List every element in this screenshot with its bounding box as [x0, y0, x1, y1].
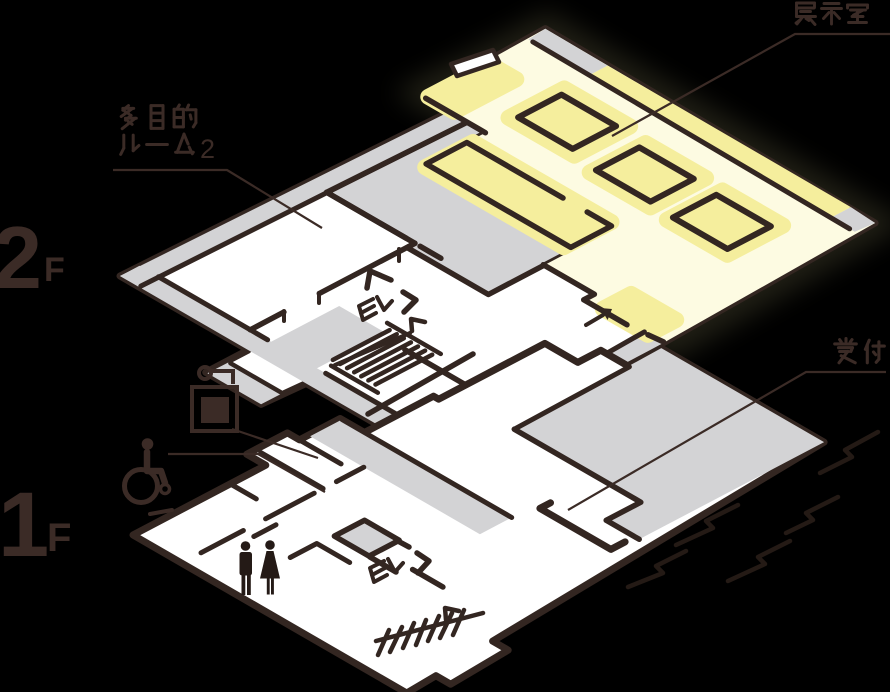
svg-text:1: 1	[0, 474, 49, 576]
svg-text:F: F	[44, 251, 65, 289]
svg-text:2: 2	[0, 208, 42, 307]
svg-text:F: F	[47, 516, 71, 560]
svg-text:2: 2	[200, 134, 215, 164]
